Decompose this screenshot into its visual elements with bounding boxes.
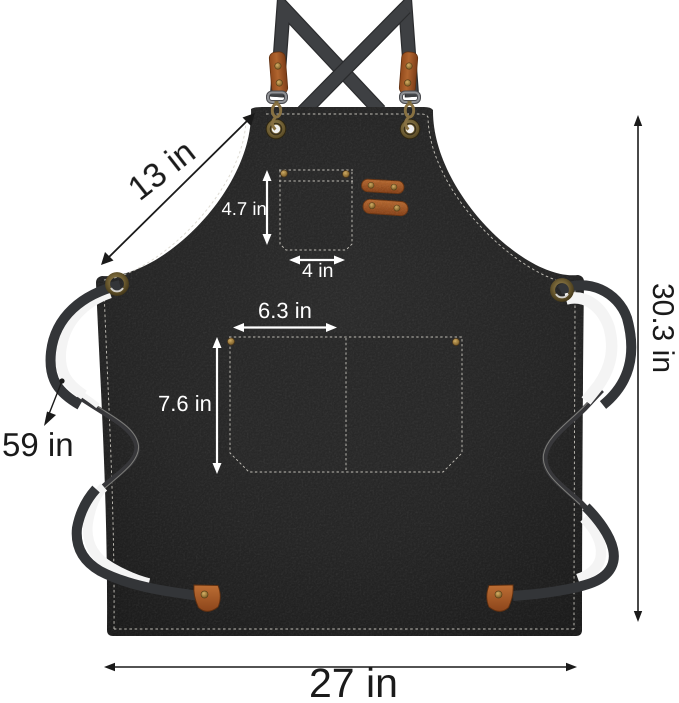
svg-text:7.6 in: 7.6 in	[158, 391, 212, 416]
svg-text:30.3 in: 30.3 in	[646, 283, 679, 373]
svg-text:4.7 in: 4.7 in	[222, 198, 267, 219]
svg-text:59 in: 59 in	[2, 426, 74, 463]
svg-text:27 in: 27 in	[309, 660, 398, 703]
svg-text:4 in: 4 in	[302, 260, 333, 282]
svg-text:6.3 in: 6.3 in	[258, 298, 312, 323]
